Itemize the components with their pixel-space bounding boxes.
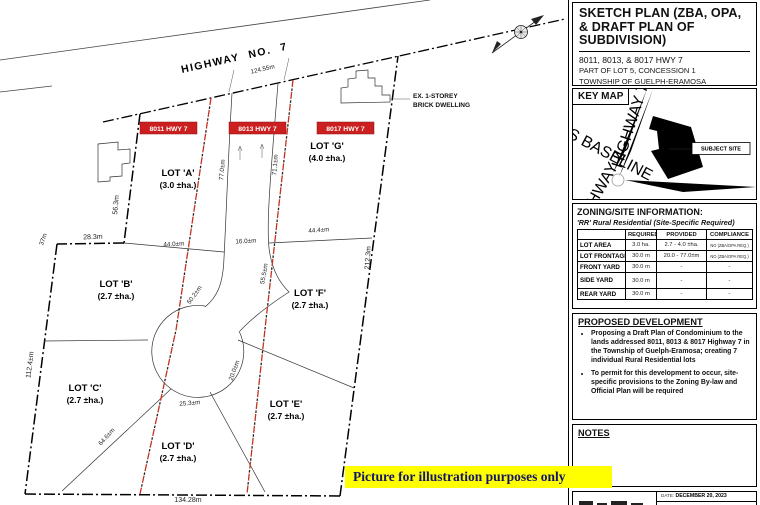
table-row: LOT AREA 3.0 ha. 2.7 - 4.0 ±ha. NO (ZBA/…	[578, 240, 753, 251]
subject-site-label: SUBJECT SITE	[701, 147, 741, 153]
lot-line-f-g	[269, 238, 372, 243]
dim-lot-cd: 64.6±m	[97, 427, 116, 447]
dim-west-boundary: 112.4±m	[25, 351, 35, 378]
dim-west-jog: 28.3m	[83, 234, 103, 242]
zoning-row-label: SIDE YARD	[578, 273, 626, 289]
proposed-bullet-1: Proposing a Draft Plan of Condominium to…	[591, 330, 751, 366]
dim-frontage: 124.55m	[250, 63, 275, 75]
lot-lines	[44, 238, 372, 492]
footer-date-rule	[656, 501, 757, 502]
highway-property-line	[103, 19, 565, 122]
dim-lot-a-west: 56.3m	[112, 195, 121, 215]
zoning-cell: -	[657, 289, 707, 300]
driveway-arrow	[260, 144, 264, 158]
dim-bulb-south: 25.3±m	[179, 399, 200, 408]
zoning-cell: -	[657, 262, 707, 273]
existing-dwelling-outline	[341, 70, 390, 103]
dwelling-note-line2: BRICK DWELLING	[413, 102, 470, 109]
driveway-arrow	[238, 146, 242, 160]
table-row: LOT FRONTAGE 30.0 m 20.0 - 77.0±m NO (ZB…	[578, 251, 753, 262]
boundary-south	[25, 494, 340, 496]
proposed-lot-lines	[140, 80, 293, 494]
proposed-bullet-list: Proposing a Draft Plan of Condominium to…	[578, 330, 751, 397]
plan-drawing: 8011 HWY 7 8013 HWY 7 8017 HWY 7 HIGHWAY…	[0, 0, 570, 505]
zoning-col-compliance: COMPLIANCE	[707, 230, 753, 240]
key-map-title: KEY MAP	[573, 89, 629, 105]
dim-east-boundary: 212.3m	[364, 246, 373, 270]
lot-g-area: (4.0 ±ha.)	[309, 153, 346, 163]
zoning-col-provided: PROVIDED	[657, 230, 707, 240]
address-box-8013-label: 8013 HWY 7	[238, 126, 277, 133]
cul-de-sac-bulb	[152, 305, 244, 397]
proposed-bullet-2: To permit for this development to occur,…	[591, 370, 751, 397]
sheet-title: SKETCH PLAN (ZBA, OPA, & DRAFT PLAN OF S…	[579, 7, 750, 52]
date-value: DECEMBER 20, 2023	[675, 493, 726, 499]
boundary-west-jog	[57, 243, 124, 244]
zoning-cell: 30.0 m	[626, 289, 657, 300]
zoning-row-label: LOT FRONTAGE	[578, 251, 626, 262]
zoning-cell: NO (ZBA/OPA REQ.)	[707, 251, 753, 262]
date-label: DATE:	[661, 493, 674, 498]
driveway-west-edge	[205, 93, 232, 307]
partial-logo	[577, 500, 653, 505]
notes-heading: NOTES	[578, 428, 751, 438]
lot-e-name: LOT 'E'	[270, 399, 303, 410]
road-edge-stub	[0, 86, 52, 92]
zoning-cell: 3.0 ha.	[626, 240, 657, 251]
lot-a-name: LOT 'A'	[161, 168, 194, 179]
zoning-heading: ZONING/SITE INFORMATION:	[577, 207, 752, 217]
highway-edge-line	[0, 0, 430, 60]
illustration-disclaimer-banner: Picture for illustration purposes only	[345, 466, 612, 488]
lot-a-area: (3.0 ±ha.)	[160, 180, 197, 190]
sheet-address: 8011, 8013, & 8017 HWY 7	[579, 55, 750, 65]
zoning-row-label: LOT AREA	[578, 240, 626, 251]
lot-e-area: (2.7 ±ha.)	[268, 411, 305, 421]
table-row: REAR YARD 30.0 m - -	[578, 289, 753, 300]
address-box-8017-label: 8017 HWY 7	[326, 126, 365, 133]
lot-c-area: (2.7 ±ha.)	[67, 395, 104, 405]
sketch-plan-sheet: 8011 HWY 7 8013 HWY 7 8017 HWY 7 HIGHWAY…	[0, 0, 760, 505]
lot-b-name: LOT 'B'	[99, 279, 132, 290]
lot-labels: LOT 'A' (3.0 ±ha.) LOT 'G' (4.0 ±ha.) LO…	[67, 141, 346, 463]
lot-g-name: LOT 'G'	[310, 141, 344, 152]
lot-line-e-f	[238, 340, 354, 388]
zoning-header-row: REQUIRED PROVIDED COMPLIANCE	[578, 230, 753, 240]
table-row: FRONT YARD 30.0 m - -	[578, 262, 753, 273]
sheet-subtitle-1: PART OF LOT 5, CONCESSION 1	[579, 66, 750, 75]
dim-lot-f-north: 44.4±m	[308, 226, 329, 234]
proposed-heading: PROPOSED DEVELOPMENT	[578, 317, 751, 327]
zoning-info-section: ZONING/SITE INFORMATION: 'RR' Rural Resi…	[572, 203, 757, 309]
zoning-cell: 30.0 m	[626, 262, 657, 273]
dwelling-note: EX. 1-STOREY BRICK DWELLING	[413, 93, 470, 109]
address-box-8011-label: 8011 HWY 7	[149, 126, 187, 133]
panel-separator-line	[568, 0, 569, 505]
lot-b-area: (2.7 ±ha.)	[98, 291, 135, 301]
dim-lot-b-north: 44.0±m	[163, 240, 184, 248]
proposed-development-section: PROPOSED DEVELOPMENT Proposing a Draft P…	[572, 313, 757, 420]
boundary-west-upper	[124, 114, 140, 243]
dim-south-boundary: 134.28m	[174, 497, 201, 504]
footer-divider	[656, 492, 657, 505]
lot-f-name: LOT 'F'	[294, 288, 326, 299]
dim-lot-g-west: 71.1±m	[271, 154, 280, 175]
zoning-cell: 2.7 - 4.0 ±ha.	[657, 240, 707, 251]
lot-d-name: LOT 'D'	[161, 441, 194, 452]
key-map: KEY MAP SUBJECT SITE HIGHWAY 7 JONES BAS…	[572, 88, 757, 200]
address-boxes: 8011 HWY 7 8013 HWY 7 8017 HWY 7	[140, 122, 374, 134]
table-row: SIDE YARD 30.0 m - -	[578, 273, 753, 289]
zoning-cell: 30.0 m	[626, 273, 657, 289]
zoning-cell: -	[707, 262, 753, 273]
zoning-col-required: REQUIRED	[626, 230, 657, 240]
dwelling-note-line1: EX. 1-STOREY	[413, 93, 458, 100]
lot-d-area: (2.7 ±ha.)	[160, 453, 197, 463]
dim-west-tiny: 37m	[38, 233, 49, 247]
dim-road-width: 16.0±m	[235, 237, 256, 245]
zoning-cell: -	[707, 289, 753, 300]
lot-c-name: LOT 'C'	[68, 383, 101, 394]
dimension-tick	[284, 58, 289, 80]
zoning-cell: -	[657, 273, 707, 289]
sheet-subtitle-2: TOWNSHIP OF GUELPH-ERAMOSA	[579, 77, 750, 86]
zoning-table: REQUIRED PROVIDED COMPLIANCE LOT AREA 3.…	[577, 229, 753, 300]
footer-date: DATE: DECEMBER 20, 2023	[661, 493, 727, 499]
highway-lines	[0, 0, 565, 122]
red-lot-line-west	[140, 98, 211, 494]
zoning-cell: 20.0 - 77.0±m	[657, 251, 707, 262]
zoning-cell: NO (ZBA/OPA REQ.)	[707, 240, 753, 251]
key-map-drawing: SUBJECT SITE HIGHWAY 7 JONES BASELINE HI…	[573, 89, 756, 199]
dim-lot-a-east: 77.0±m	[218, 159, 227, 180]
footer-block: DATE: DECEMBER 20, 2023	[572, 491, 757, 505]
zoning-col-blank	[578, 230, 626, 240]
red-lot-line-east	[247, 80, 293, 494]
existing-building-outline	[98, 142, 130, 182]
dim-lot-f-west: 55.5±m	[259, 263, 270, 285]
banner-text: Picture for illustration purposes only	[353, 469, 566, 485]
subject-site-dot	[663, 146, 669, 152]
red-lot-line-west-dark	[140, 98, 211, 494]
zoning-cell: -	[707, 273, 753, 289]
lot-f-area: (2.7 ±ha.)	[292, 300, 329, 310]
lot-line-b-c	[44, 340, 148, 341]
dim-lot-b-east: 50.2±m	[186, 285, 204, 306]
zoning-cell: 30.0 m	[626, 251, 657, 262]
zoning-row-label: FRONT YARD	[578, 262, 626, 273]
driveway-east-edge	[240, 83, 289, 331]
zoning-row-label: REAR YARD	[578, 289, 626, 300]
title-block: SKETCH PLAN (ZBA, OPA, & DRAFT PLAN OF S…	[572, 2, 757, 86]
dimension-tick	[229, 70, 234, 92]
zoning-subheading: 'RR' Rural Residential (Site-Specific Re…	[577, 218, 752, 227]
